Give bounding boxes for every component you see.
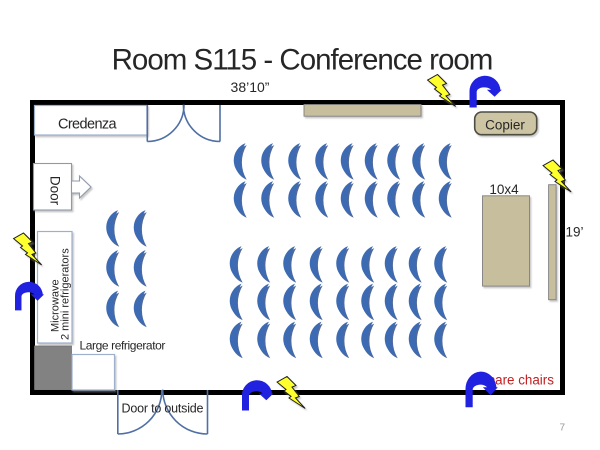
svg-text:Door to outside: Door to outside (122, 402, 204, 416)
svg-text:Large refrigerator: Large refrigerator (80, 339, 166, 353)
svg-text:19’: 19’ (566, 225, 584, 240)
svg-text:Room S115 - Conference room: Room S115 - Conference room (112, 44, 493, 77)
svg-text:10x4: 10x4 (489, 182, 519, 197)
svg-text:Credenza: Credenza (58, 117, 118, 133)
svg-text:Door: Door (48, 176, 63, 206)
svg-text:38’10”: 38’10” (231, 79, 270, 95)
svg-text:2 mini refrigerators: 2 mini refrigerators (59, 248, 71, 340)
svg-text:7: 7 (560, 423, 566, 434)
svg-text:Copier: Copier (485, 118, 525, 133)
